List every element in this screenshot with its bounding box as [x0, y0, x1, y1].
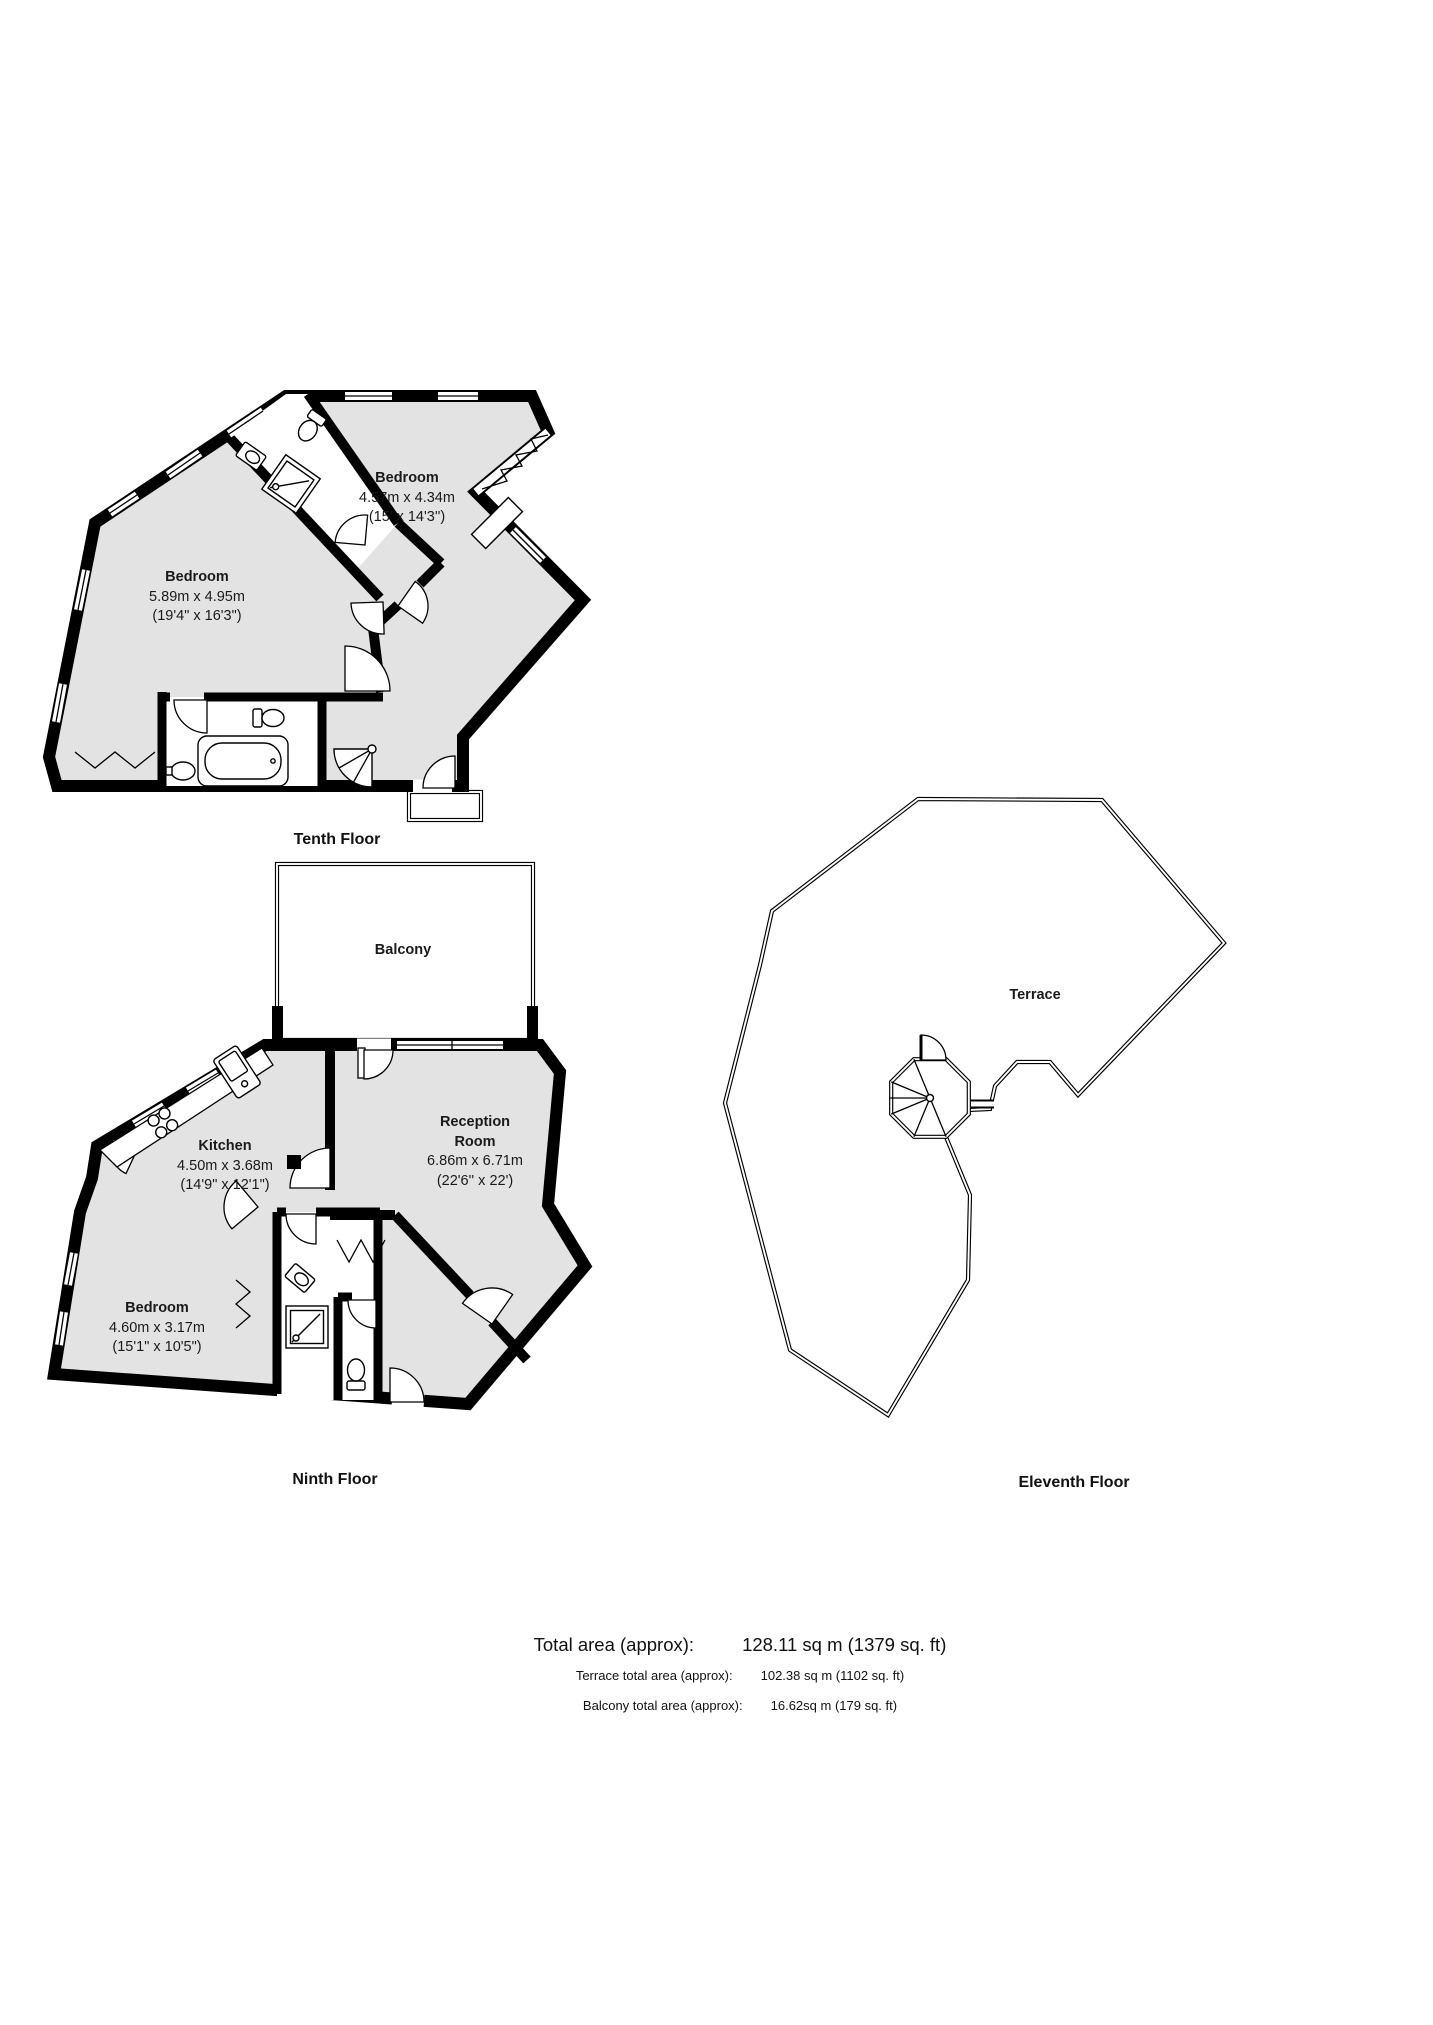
balcony-area-line: Balcony total area (approx): 16.62sq m (…: [583, 1698, 897, 1713]
room-name: Bedroom: [149, 568, 245, 588]
room-size-imperial: (15'1" x 10'5"): [109, 1338, 205, 1358]
room-name: Bedroom: [109, 1299, 205, 1319]
room-label-balcony: Balcony: [375, 941, 431, 961]
room-name: Reception: [427, 1113, 523, 1133]
tenth-step: [409, 792, 481, 820]
floorplan-drawing: [0, 0, 1433, 2025]
room-name: Balcony: [375, 941, 431, 961]
column: [287, 1155, 301, 1169]
room-size-metric: 4.57m x 4.34m: [359, 489, 455, 509]
room-label-bedroom-left: Bedroom 5.89m x 4.95m (19'4" x 16'3"): [149, 568, 245, 627]
terrace-area-label: Terrace total area (approx):: [576, 1668, 733, 1683]
floorplan-page: Bedroom 4.57m x 4.34m (15' x 14'3'') Bed…: [0, 0, 1433, 2025]
terrace-area-line: Terrace total area (approx): 102.38 sq m…: [576, 1668, 904, 1683]
total-area-value: 128.11 sq m (1379 sq. ft): [742, 1634, 946, 1656]
floor-label-eleventh: Eleventh Floor: [1018, 1474, 1129, 1492]
floor-label-ninth: Ninth Floor: [292, 1471, 377, 1489]
room-size-metric: 4.60m x 3.17m: [109, 1319, 205, 1339]
total-area-label: Total area (approx):: [534, 1634, 694, 1656]
room-size-imperial: (22'6'' x 22'): [427, 1172, 523, 1192]
balcony-area-value: 16.62sq m (179 sq. ft): [771, 1698, 897, 1713]
toilet-icon: [347, 1359, 365, 1390]
bathtub-icon: [198, 736, 288, 786]
room-size-metric: 5.89m x 4.95m: [149, 588, 245, 608]
room-name: Room: [427, 1133, 523, 1153]
shower-icon: [286, 1306, 328, 1348]
room-name: Bedroom: [359, 469, 455, 489]
room-label-kitchen: Kitchen 4.50m x 3.68m (14'9" x 12'1"): [177, 1137, 273, 1196]
room-name: Kitchen: [177, 1137, 273, 1157]
room-size-imperial: (14'9" x 12'1"): [177, 1176, 273, 1196]
room-name: Terrace: [1009, 986, 1060, 1006]
toilet-icon: [253, 709, 284, 727]
terrace-area-value: 102.38 sq m (1102 sq. ft): [761, 1668, 905, 1683]
room-label-reception: Reception Room 6.86m x 6.71m (22'6'' x 2…: [427, 1113, 523, 1191]
floor-label-tenth: Tenth Floor: [294, 831, 381, 849]
room-label-bedroom-ninth: Bedroom 4.60m x 3.17m (15'1" x 10'5"): [109, 1299, 205, 1358]
total-area-line: Total area (approx): 128.11 sq m (1379 s…: [534, 1634, 947, 1656]
balcony-area-label: Balcony total area (approx):: [583, 1698, 743, 1713]
tenth-floor-plan: [49, 394, 583, 820]
eleventh-floor-plan: [725, 799, 1224, 1415]
room-size-imperial: (15' x 14'3''): [359, 508, 455, 528]
room-size-metric: 4.50m x 3.68m: [177, 1157, 273, 1177]
room-size-imperial: (19'4" x 16'3"): [149, 607, 245, 627]
room-label-terrace: Terrace: [1009, 986, 1060, 1006]
room-size-metric: 6.86m x 6.71m: [427, 1152, 523, 1172]
room-label-bedroom-right: Bedroom 4.57m x 4.34m (15' x 14'3''): [359, 469, 455, 528]
